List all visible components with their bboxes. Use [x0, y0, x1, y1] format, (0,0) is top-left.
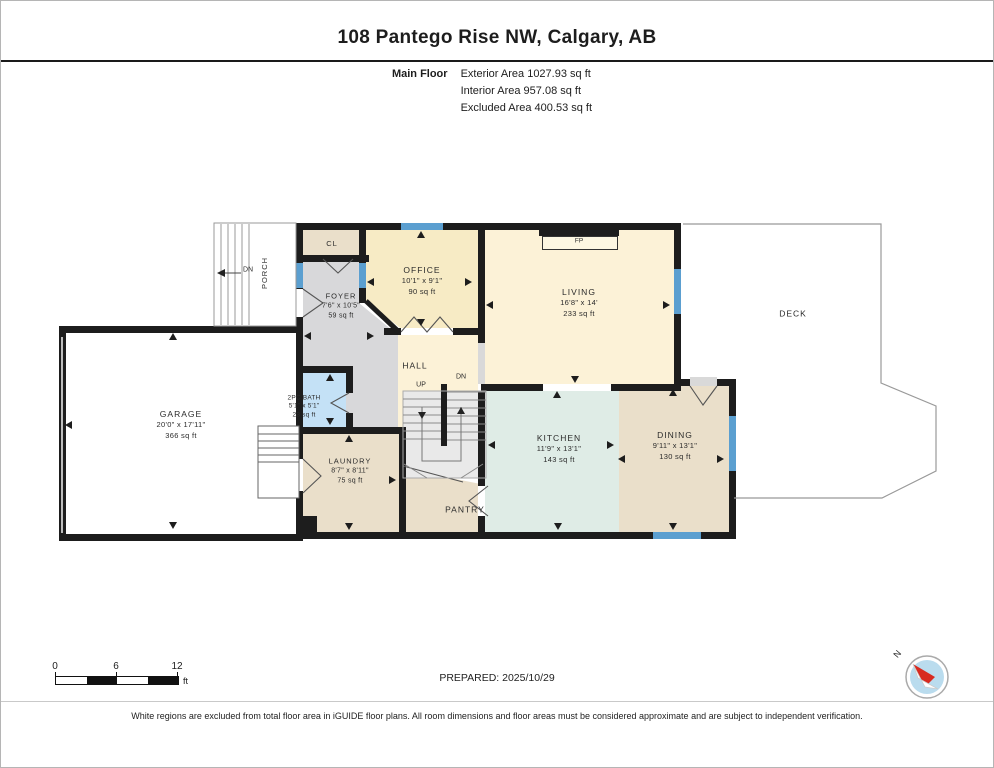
room-label-dining: DINING9'11" x 13'1"130 sq ft: [653, 430, 697, 462]
room-label-bath: 2PC BATH5'1" x 5'1"23 sq ft: [288, 394, 321, 419]
room-label-hall: HALL: [402, 360, 427, 371]
main-stairs: [403, 391, 486, 478]
stairs-dn-label: DN: [456, 372, 466, 381]
room-label-living: LIVING16'8" x 14'233 sq ft: [560, 287, 598, 319]
room-label-deck: DECK: [779, 308, 807, 319]
garage-stairs: [258, 426, 299, 498]
room-label-porch: PORCH: [260, 257, 270, 289]
porch-dn-label: DN: [243, 265, 253, 274]
diagonal-wall: [366, 301, 399, 332]
room-label-closet: CL: [326, 239, 338, 249]
dimension-arrows: [65, 231, 724, 530]
room-label-office: OFFICE10'1" x 9'1"90 sq ft: [402, 265, 443, 297]
plan-linework: [1, 1, 994, 768]
fireplace-label: FP: [575, 238, 583, 247]
room-label-kitchen: KITCHEN11'9" x 13'1"143 sq ft: [537, 433, 581, 465]
stairs-up-label: UP: [416, 380, 426, 389]
porch-stairs: [214, 223, 296, 326]
room-label-pantry: PANTRY: [445, 504, 485, 515]
room-label-laundry: LAUNDRY8'7" x 8'11"75 sq ft: [329, 457, 372, 486]
room-label-foyer: FOYER7'6" x 10'5"59 sq ft: [322, 292, 360, 321]
compass-icon: [894, 647, 958, 705]
room-label-garage: GARAGE20'0" x 17'11"366 sq ft: [157, 409, 206, 441]
floorplan-page: 108 Pantego Rise NW, Calgary, AB Main Fl…: [0, 0, 994, 768]
deck-outline: [683, 224, 936, 498]
